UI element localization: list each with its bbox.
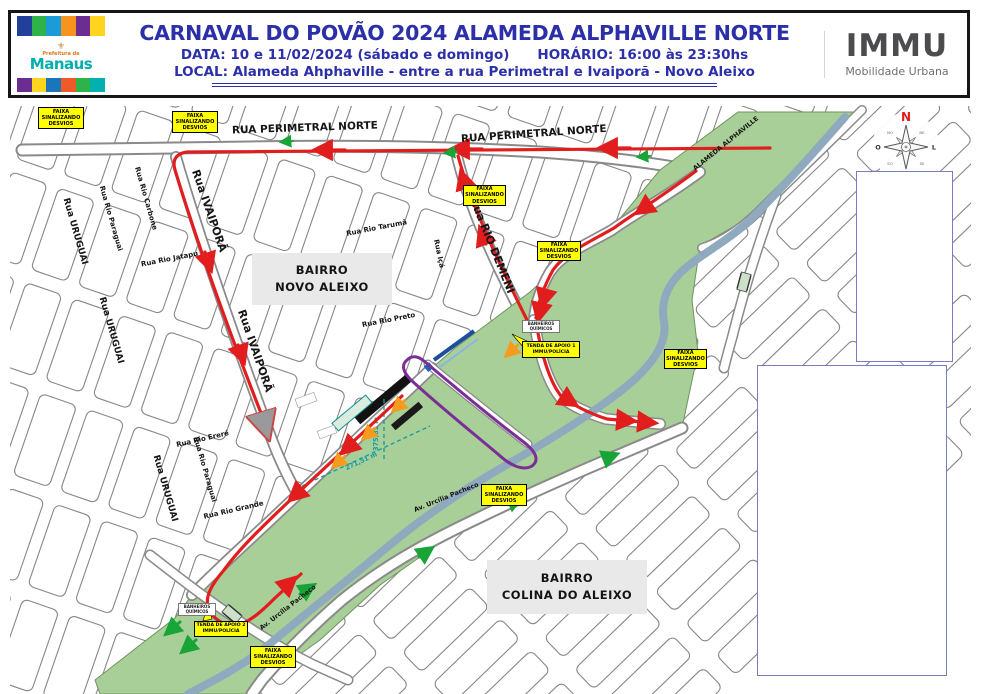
logo-mosaic-bottom xyxy=(17,78,105,92)
city-block xyxy=(445,0,509,1)
detour-sign: FAIXA SINALIZANDO DESVIOS xyxy=(38,107,84,129)
event-date-time-line: DATA: 10 e 11/02/2024 (sábado e domingo)… xyxy=(115,47,814,63)
compass-east: L xyxy=(932,144,936,152)
compass-west: O xyxy=(875,144,881,152)
compass-north: N xyxy=(901,110,911,124)
event-location: LOCAL: Alameda Ahphaville - entre a rua … xyxy=(115,64,814,80)
detour-sign: FAIXA SINALIZANDO DESVIOS xyxy=(463,185,506,206)
detour-sign-line: DESVIOS xyxy=(49,121,74,127)
detour-sign-line: DESVIOS xyxy=(547,254,572,260)
detour-sign-line: DESVIOS xyxy=(673,362,698,368)
detour-sign: FAIXA SINALIZANDO DESVIOS xyxy=(537,241,581,261)
detour-sign-line: DESVIOS xyxy=(261,660,286,666)
city-block xyxy=(844,0,931,1)
toilets-sign: BANHEIROS QUÍMICOS xyxy=(178,603,216,616)
detour-sign-line: DESVIOS xyxy=(472,199,497,205)
logo-city-name: Manaus xyxy=(30,57,92,72)
compass-nw: NO xyxy=(887,130,893,135)
page-title: CARNAVAL DO POVÃO 2024 ALAMEDA ALPHAVILL… xyxy=(115,21,814,45)
detour-sign-line: DESVIOS xyxy=(183,125,208,131)
district-line: BAIRRO xyxy=(541,570,593,587)
legend-box-top xyxy=(856,171,953,362)
manaus-city-logo: ⚜ Prefeitura de Manaus xyxy=(17,16,105,92)
detour-sign: FAIXA SINALIZANDO DESVIOS xyxy=(172,111,218,133)
toilets-sign-line: QUÍMICOS xyxy=(530,327,553,332)
detour-sign: FAIXA SINALIZANDO DESVIOS xyxy=(250,646,296,668)
immu-logo: IMMU Mobilidade Urbana xyxy=(824,31,961,78)
toilets-sign-line: QUÍMICOS xyxy=(186,610,209,615)
city-block xyxy=(74,0,161,10)
district-label-novo-aleixo: BAIRRO NOVO ALEIXO xyxy=(252,253,392,305)
detour-sign-line: DESVIOS xyxy=(492,498,517,504)
header-bar: ⚜ Prefeitura de Manaus CARNAVAL DO POVÃO… xyxy=(8,10,970,98)
legend-box-bottom xyxy=(757,365,947,676)
logo-mosaic-top xyxy=(17,16,105,36)
tent-sign-line: IMMU/POLÍCIA xyxy=(533,350,570,356)
support-tent-1-sign: TENDA DE APOIO 1 IMMU/POLÍCIA xyxy=(522,341,580,358)
compass-se: SE xyxy=(920,161,925,166)
compass-ne: NE xyxy=(919,130,925,135)
event-date: DATA: 10 e 11/02/2024 (sábado e domingo) xyxy=(181,47,510,63)
support-tent-2-sign: TENDA DE APOIO 2 IMMU/POLÍCIA xyxy=(194,621,248,637)
logo-center: ⚜ Prefeitura de Manaus xyxy=(17,36,105,78)
carnival-traffic-map-page: ⚜ Prefeitura de Manaus CARNAVAL DO POVÃO… xyxy=(0,0,981,694)
event-time: HORÁRIO: 16:00 às 23:30hs xyxy=(537,47,748,63)
district-line: BAIRRO xyxy=(296,262,348,279)
district-label-colina-do-aleixo: BAIRRO COLINA DO ALEIXO xyxy=(487,560,647,614)
header-underline xyxy=(212,83,717,87)
detour-sign: FAIXA SINALIZANDO DESVIOS xyxy=(664,349,707,369)
toilets-sign: BANHEIROS QUÍMICOS xyxy=(522,320,560,333)
header-text-block: CARNAVAL DO POVÃO 2024 ALAMEDA ALPHAVILL… xyxy=(115,21,814,87)
compass-sw: SO xyxy=(887,161,892,166)
district-line: COLINA DO ALEIXO xyxy=(502,587,632,604)
tent-sign-line: IMMU/POLÍCIA xyxy=(203,629,240,635)
district-line: NOVO ALEIXO xyxy=(275,279,369,296)
detour-sign: FAIXA SINALIZANDO DESVIOS xyxy=(481,484,527,506)
immu-subtitle: Mobilidade Urbana xyxy=(833,65,961,78)
immu-acronym: IMMU xyxy=(833,31,961,62)
